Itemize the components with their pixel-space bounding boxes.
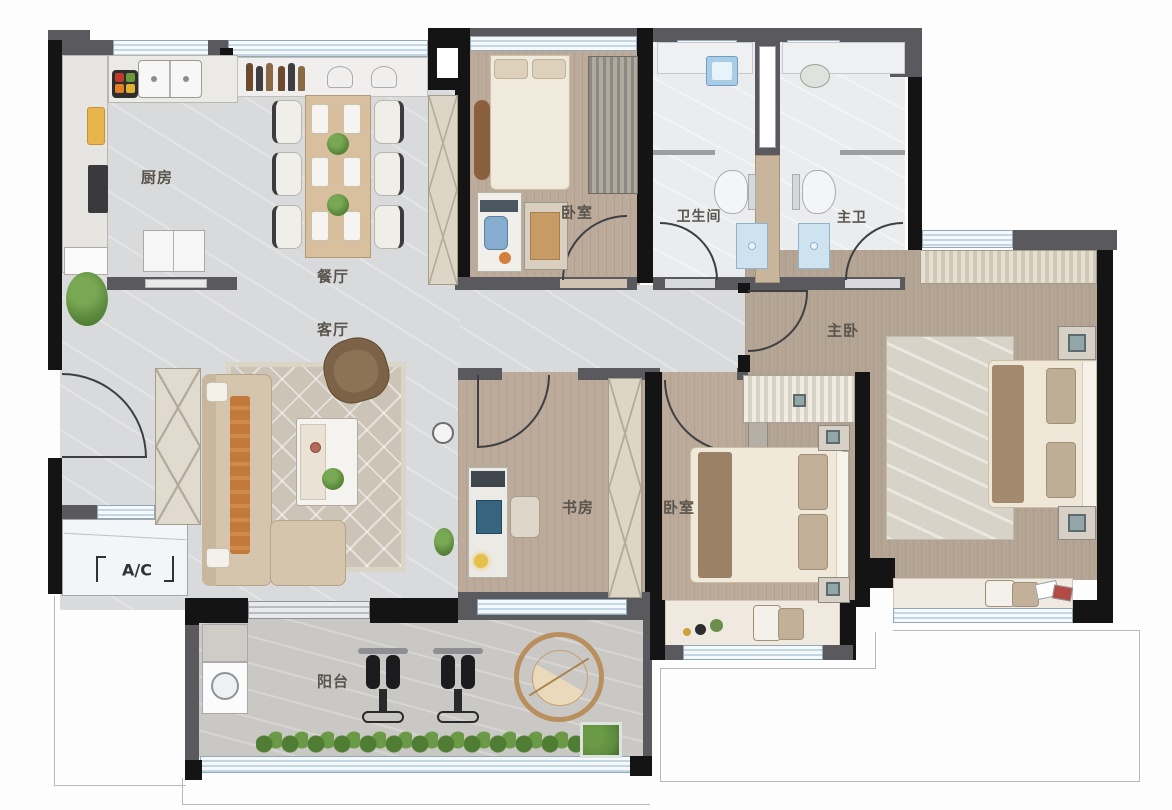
kitchen-sink-divider [169,61,171,97]
wine-bottle [266,63,273,91]
room-label-balcony: 阳台 [317,671,349,692]
dining-chair [272,152,302,196]
place-setting [311,157,329,187]
bedroomtop-pillow [494,59,528,79]
outline-line [182,804,650,805]
bedroomtop-deco-dot [499,252,511,264]
bay2-cap [665,645,683,660]
study-wardrobe [608,378,642,598]
room-label-masterbath: 主卫 [837,207,867,227]
wall-master-top [1013,230,1117,250]
bedroom2-pillow [798,454,828,510]
exercise-machine-pad [386,655,400,689]
tv-cabinet [155,368,201,525]
wall-study-bedroom2 [645,372,662,605]
kitchen-slide-door [145,279,207,288]
balcony-railing [200,756,643,773]
room-label-kitchen: 厨房 [141,167,173,188]
wine-bottle [288,63,295,91]
teaset-icon [371,66,397,88]
bay2-plant-pot [710,619,723,632]
bathroom-sink-inner [712,62,732,80]
study-shelf [471,471,505,487]
baym-pillow [985,580,1015,607]
floor-lamp [432,422,454,444]
master-bed-headboard [1082,362,1096,506]
master-bedroom-top-window [922,230,1013,248]
balcony-planter-box [580,722,622,758]
ac-bracket-right [164,556,174,582]
stove-burner [115,73,124,82]
hanging-chair-seat [532,650,588,706]
bedroomtop-pillow [532,59,566,79]
teaset-icon [327,66,353,88]
wall-masterbath-right [908,77,922,250]
baym-photo-frame [1052,584,1073,601]
baym-cap [1073,600,1097,623]
kitchen-sink-drain [151,76,157,82]
coffee-table-tray [300,424,326,500]
exercise-machine-stem [454,689,462,713]
dining-tall-cabinet [428,95,458,285]
wall-balcony-left [185,625,199,778]
kitchen-sink-drain [183,76,189,82]
bay2-pillow [778,608,804,640]
room-label-ac: A/C [122,561,152,580]
masterbath-shower-drain [810,242,818,250]
washer-drum [211,672,239,700]
ac-window [97,505,155,519]
coffee-table-plant [322,468,344,490]
master-bay-window [893,608,1073,623]
bay2-cap [823,645,853,660]
balcony-plant-strip [256,730,582,758]
master-nightstand-frame [1068,514,1086,532]
bath-divider-window [759,46,776,148]
study-bottom-window [477,599,627,615]
bedroom2-nightstand-frame [826,582,840,596]
outline-line [660,668,661,782]
bedroom2-headboard [836,452,848,580]
dining-chair [374,152,404,196]
stove-burner [126,73,135,82]
balcony-corner [630,756,652,776]
table-plant [327,133,349,155]
bathroom-shower-drain [748,242,756,250]
dining-chair [374,205,404,249]
bay2-cup [695,624,706,635]
bath-partition [840,150,905,155]
bathroom-door-gap [665,279,715,288]
wine-bottle [298,66,305,91]
wine-bottle [256,66,263,91]
place-setting [343,157,361,187]
wall-left-upper [48,40,62,370]
outline-line [660,781,1140,782]
exercise-machine [433,648,483,654]
exercise-machine-base [437,711,479,723]
stove-burner [126,84,135,93]
place-setting [311,211,329,241]
bay2-stub [650,600,665,660]
dining-chair [272,100,302,144]
master-pillow [1046,368,1076,424]
outline-line [1139,630,1140,782]
master-door-panel [748,290,808,292]
place-setting [343,211,361,241]
place-setting [343,104,361,134]
study-monitor [476,500,502,534]
wall-living-bottom [370,598,458,623]
balcony-corner [185,760,202,780]
room-label-master-bedroom: 主卧 [827,320,859,341]
study-door-panel [477,375,479,448]
masterbath-toilet [802,170,836,214]
room-label-study: 书房 [562,497,594,518]
bedroom-top-window [470,36,637,51]
master-wardrobe [920,250,1097,284]
bay2-cup [683,628,691,636]
kitchen-fridge [143,230,205,272]
dining-chair [374,100,404,144]
exercise-machine [358,648,408,654]
sofa-chaise [270,520,346,586]
wall-window-inset [437,48,458,78]
bedroomtop-door-gap [560,279,627,288]
outline-line [54,785,186,786]
bedroom2-bay-window [683,645,823,660]
bath-partition [653,150,715,155]
table-plant [327,194,349,216]
sofa-pillow [206,382,228,402]
outline-line [182,778,183,805]
living-plant [66,272,108,326]
wall-study-top [578,368,605,380]
master-bed-throw [992,365,1024,503]
place-setting [311,104,329,134]
stove-burner [115,84,124,93]
kitchen-cabinet [64,247,108,275]
bedroom2-pillow [798,514,828,570]
exercise-machine-pad [441,655,455,689]
bathroom-toilet-tank [748,174,756,210]
wall-master-right [1097,250,1113,623]
bay2-pillow [753,605,781,641]
exercise-machine-base [362,711,404,723]
fridge-handle [173,231,174,271]
wine-bottle [278,66,285,91]
bedroomtop-desk-chair [484,216,508,250]
outline-line [875,632,876,668]
outline-line [660,668,876,669]
outline-line [54,596,55,786]
room-label-bathroom: 卫生间 [677,206,722,226]
floor-plan: A/C 厨房 餐厅 [0,0,1172,810]
room-label-bedroom-second: 卧室 [663,497,695,518]
bedroomtop-wardrobe [588,56,638,194]
sofa-throw [230,396,250,554]
exercise-machine-stem [379,689,387,713]
kitchen-cooktop-dark [88,165,108,213]
bedroomtop-mirror-inner [530,212,560,260]
room-label-bedroom-top: 卧室 [561,202,593,223]
dining-chair [272,205,302,249]
masterbath-door-gap [845,279,900,288]
exercise-machine-pad [366,655,380,689]
master-pillow [1046,442,1076,498]
wall-left-lower [48,458,62,558]
room-label-dining: 餐厅 [317,266,349,287]
masterbath-basin [800,64,830,88]
coffee-table-cup [310,442,321,453]
masterbath-toilet-tank [792,174,800,210]
wall-master-door-stub [738,355,750,372]
balcony-cabinet [202,624,248,662]
baym-stub [862,558,895,588]
ac-bracket-left [96,556,106,582]
room-label-living: 客厅 [317,319,349,340]
kitchen-cutting-board [87,107,105,145]
entry-door-panel [62,456,147,458]
bedroom2-wardrobe-frame [793,394,806,407]
wall-balcony-left-top [185,598,199,628]
bedroom2-nightstand-frame [826,430,840,444]
wine-bottle [246,63,253,91]
kitchen-counter-left [62,55,108,273]
study-chair [510,496,540,538]
master-nightstand-frame [1068,334,1086,352]
masterbath-vanity [782,42,905,74]
bedroomtop-monitor [480,200,518,212]
exercise-machine-pad [461,655,475,689]
outline-line [893,630,1140,631]
bedroomtop-lounge-chair [474,100,490,180]
floor-hallway [460,285,745,372]
wall-bedroom-bath [637,28,653,283]
sofa-pillow [206,548,230,568]
study-lamp-dot [474,554,488,568]
living-small-plant [434,528,454,556]
balcony-slide-door [248,601,370,619]
dining-window [228,40,428,57]
bathroom-vanity [657,42,753,74]
bedroom2-bed-throw [698,452,732,578]
